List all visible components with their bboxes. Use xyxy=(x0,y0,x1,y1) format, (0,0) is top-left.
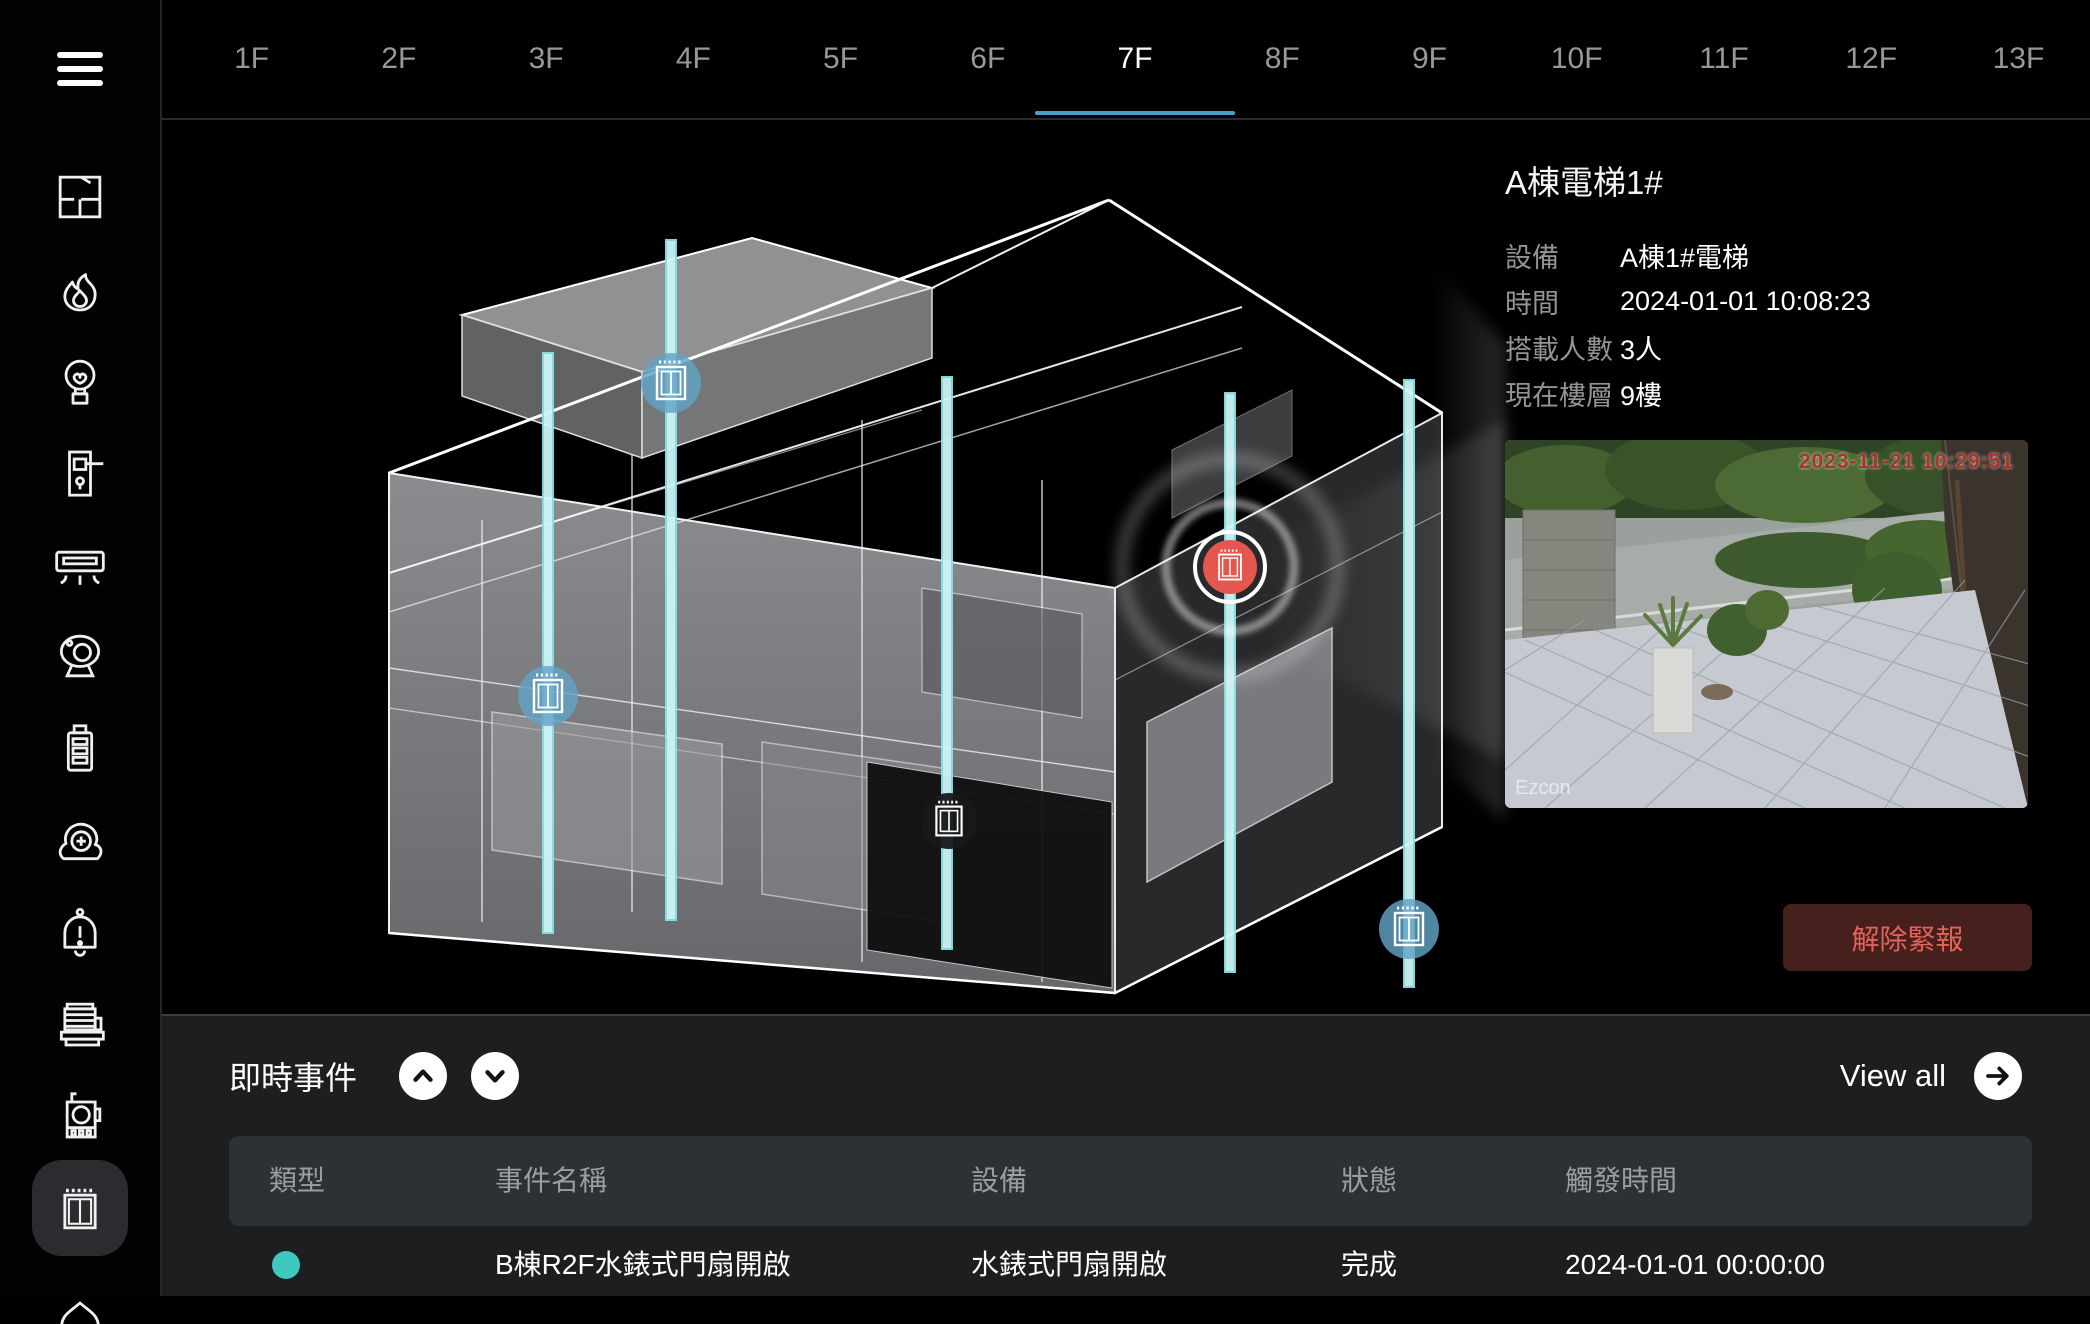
tab-label: 9F xyxy=(1412,42,1447,76)
tab-label: 3F xyxy=(529,42,564,76)
events-title: 即時事件 xyxy=(229,1053,357,1099)
tab-3f[interactable]: 3F xyxy=(472,0,619,118)
sidebar-item-hvac[interactable] xyxy=(0,537,160,593)
detail-label: 搭載人數 xyxy=(1505,328,1620,367)
tab-label: 12F xyxy=(1845,42,1897,76)
tab-11f[interactable]: 11F xyxy=(1650,0,1797,118)
column-header-device: 設備 xyxy=(971,1136,1027,1226)
chevron-down-icon xyxy=(480,1061,510,1091)
tab-label: 1F xyxy=(234,42,269,76)
detail-value: 9樓 xyxy=(1620,374,1662,413)
sidebar-item-elevator[interactable] xyxy=(0,1160,160,1256)
building-3d-stage: A棟電梯1# 設備 A棟1#電梯 時間 2024-01-01 10:08:23 … xyxy=(162,120,2090,1014)
event-type-dot xyxy=(272,1251,300,1279)
sidebar-item-security[interactable] xyxy=(0,1268,160,1324)
view-all-label: View all xyxy=(1840,1058,1946,1094)
events-table-header: 類型 事件名稱 設備 狀態 觸發時間 xyxy=(229,1136,2032,1226)
light-bulb-icon xyxy=(52,353,108,409)
event-time: 2024-01-01 00:00:00 xyxy=(1565,1228,1825,1302)
cctv-snapshot[interactable]: 2023-11-21 10:29:51 Ezcon xyxy=(1505,440,2028,808)
tab-label: 2F xyxy=(381,42,416,76)
detail-panel-rows: 設備 A棟1#電梯 時間 2024-01-01 10:08:23 搭載人數 3人… xyxy=(1505,232,2045,416)
tab-2f[interactable]: 2F xyxy=(325,0,472,118)
arrow-right-icon xyxy=(1974,1052,2022,1100)
tab-label: 4F xyxy=(676,42,711,76)
column-header-type: 類型 xyxy=(269,1136,325,1226)
tab-label: 11F xyxy=(1699,42,1748,76)
tab-label: 6F xyxy=(970,42,1005,76)
tab-10f[interactable]: 10F xyxy=(1503,0,1650,118)
detail-row: 時間 2024-01-01 10:08:23 xyxy=(1505,278,2045,324)
realtime-events-panel: 即時事件 View all 類型 事件名稱 設備 狀態 觸發時間 B棟R2F水錶… xyxy=(162,1014,2090,1296)
sidebar-item-alarm[interactable] xyxy=(0,904,160,960)
event-device: 水錶式門扇開啟 xyxy=(971,1228,1167,1302)
tab-label: 13F xyxy=(1993,42,2045,76)
sidebar-item-water-meter[interactable] xyxy=(0,1088,160,1144)
event-status: 完成 xyxy=(1341,1228,1397,1302)
sidebar xyxy=(0,0,160,1296)
detail-row: 現在樓層 9樓 xyxy=(1505,370,2045,416)
air-conditioner-icon xyxy=(52,537,108,593)
tab-label: 7F xyxy=(1118,42,1153,76)
active-tab-underline xyxy=(1035,111,1235,115)
sidebar-item-power[interactable] xyxy=(0,720,160,776)
tab-13f[interactable]: 13F xyxy=(1945,0,2090,118)
sidebar-item-fire[interactable] xyxy=(0,261,160,317)
elevator-marker-blue-2[interactable] xyxy=(518,666,578,726)
tab-6f[interactable]: 6F xyxy=(914,0,1061,118)
detail-panel-title: A棟電梯1# xyxy=(1505,156,1663,204)
tab-label: 5F xyxy=(823,42,858,76)
detail-row: 搭載人數 3人 xyxy=(1505,324,2045,370)
detail-row: 設備 A棟1#電梯 xyxy=(1505,232,2045,278)
table-row[interactable]: B棟R2F水錶式門扇開啟 水錶式門扇開啟 完成 2024-01-01 00:00… xyxy=(229,1228,2032,1302)
sidebar-item-generator[interactable] xyxy=(0,996,160,1052)
camera-scene xyxy=(1505,440,2028,808)
detail-label: 時間 xyxy=(1505,282,1620,321)
elevator-marker-blue-1[interactable] xyxy=(641,353,701,413)
hamburger-menu-icon[interactable] xyxy=(57,52,103,86)
battery-icon xyxy=(52,720,108,776)
sidebar-item-floors[interactable] xyxy=(0,169,160,225)
alarm-bell-icon xyxy=(52,904,108,960)
column-header-status: 狀態 xyxy=(1341,1136,1397,1226)
detail-label: 現在樓層 xyxy=(1505,374,1620,413)
view-all-button[interactable]: View all xyxy=(1840,1052,2022,1100)
fire-icon xyxy=(52,261,108,317)
door-lock-icon xyxy=(52,445,108,501)
tab-4f[interactable]: 4F xyxy=(620,0,767,118)
tab-9f[interactable]: 9F xyxy=(1356,0,1503,118)
floor-plan-icon xyxy=(52,169,108,225)
elevator-marker-blue-3[interactable] xyxy=(1379,899,1439,959)
sidebar-item-pump[interactable] xyxy=(0,812,160,868)
sidebar-item-lighting[interactable] xyxy=(0,353,160,409)
column-header-event-name: 事件名稱 xyxy=(495,1136,607,1226)
fan-pump-icon xyxy=(52,812,108,868)
tab-7f[interactable]: 7F xyxy=(1061,0,1208,118)
tab-8f[interactable]: 8F xyxy=(1209,0,1356,118)
sidebar-item-cctv[interactable] xyxy=(0,628,160,684)
detail-value: 3人 xyxy=(1620,328,1662,367)
meter-icon xyxy=(52,1088,108,1144)
main-area: 1F 2F 3F 4F 5F 6F 7F 8F 9F 10F 11F 12F 1… xyxy=(160,0,2090,1296)
scroll-down-button[interactable] xyxy=(471,1052,519,1100)
sidebar-item-door-access[interactable] xyxy=(0,445,160,501)
detail-value: A棟1#電梯 xyxy=(1620,236,1749,275)
scroll-up-button[interactable] xyxy=(399,1052,447,1100)
shield-icon xyxy=(52,1268,108,1324)
elevator-icon xyxy=(52,1180,108,1236)
detail-label: 設備 xyxy=(1505,236,1620,275)
camera-timestamp: 2023-11-21 10:29:51 xyxy=(1799,450,2014,474)
camera-watermark: Ezcon xyxy=(1515,777,1571,800)
tab-1f[interactable]: 1F xyxy=(178,0,325,118)
tab-5f[interactable]: 5F xyxy=(767,0,914,118)
chevron-up-icon xyxy=(408,1061,438,1091)
tab-label: 10F xyxy=(1551,42,1603,76)
floor-tab-bar: 1F 2F 3F 4F 5F 6F 7F 8F 9F 10F 11F 12F 1… xyxy=(162,0,2090,120)
camera-icon xyxy=(52,628,108,684)
dismiss-alarm-button[interactable]: 解除緊報 xyxy=(1783,904,2032,971)
column-header-trigger-time: 觸發時間 xyxy=(1565,1136,1677,1226)
tab-label: 8F xyxy=(1265,42,1300,76)
elevator-marker-offline[interactable] xyxy=(921,793,977,849)
events-header: 即時事件 xyxy=(229,1052,543,1100)
tab-12f[interactable]: 12F xyxy=(1798,0,1945,118)
detail-value: 2024-01-01 10:08:23 xyxy=(1620,286,1871,317)
generator-icon xyxy=(52,996,108,1052)
event-name: B棟R2F水錶式門扇開啟 xyxy=(495,1228,791,1302)
